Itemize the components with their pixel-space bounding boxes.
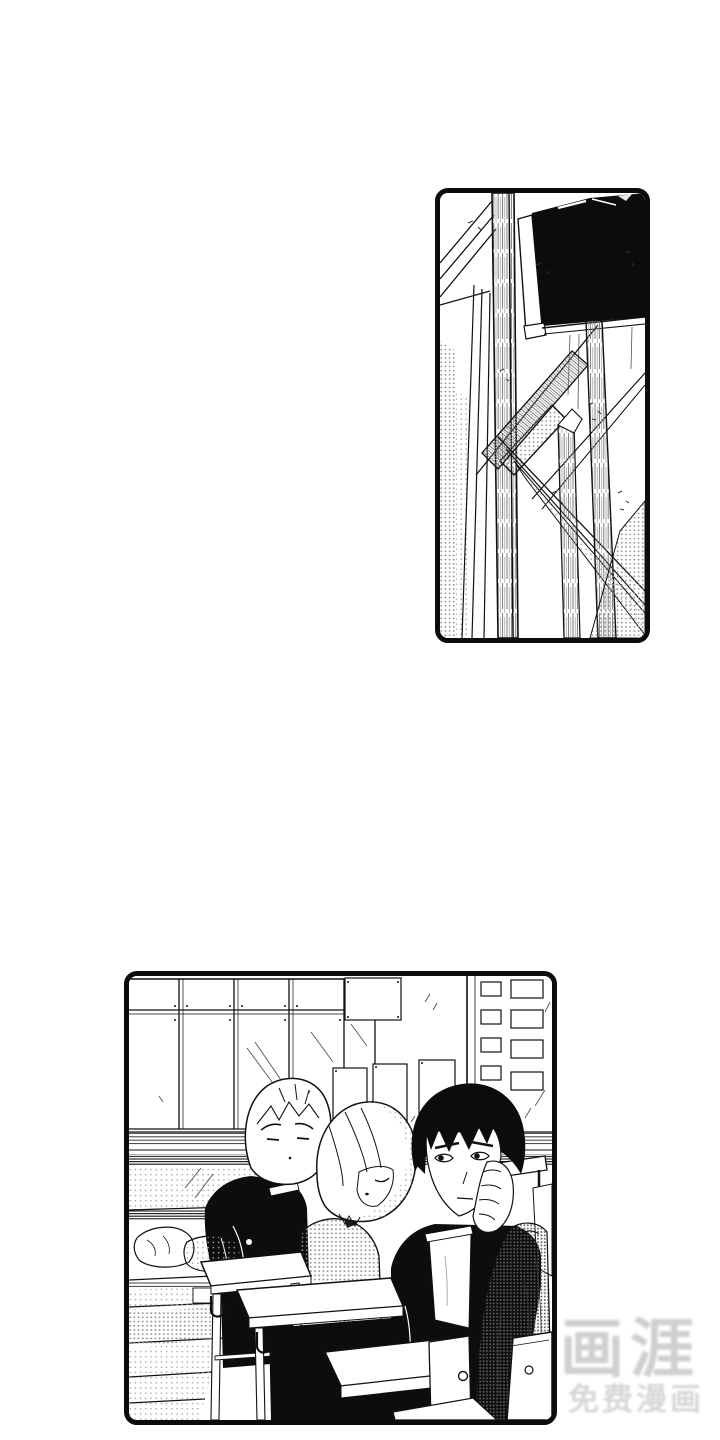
building-corner-art: [440, 193, 645, 638]
panel-knob: [459, 1372, 468, 1381]
watermark-tagline: 免费漫画: [568, 1374, 704, 1419]
dark-shirt: [429, 1232, 471, 1328]
signboard: [518, 193, 645, 339]
blond-eye: [267, 1139, 279, 1140]
blond-mouth: [289, 1157, 292, 1160]
manga-page: 画涯 免费漫画: [0, 0, 720, 1440]
dark-eye: [435, 1154, 453, 1162]
dark-eye: [471, 1152, 489, 1160]
girl-mouth: [365, 1193, 369, 1196]
manga-panel-classroom: [124, 971, 557, 1425]
panel-knob: [525, 1366, 533, 1374]
uniform-button: [246, 1239, 252, 1245]
manga-panel-building-corner: [435, 188, 650, 643]
blond-eye: [297, 1138, 309, 1139]
classroom-art: [129, 976, 552, 1420]
school-desk-right: [507, 1332, 552, 1420]
